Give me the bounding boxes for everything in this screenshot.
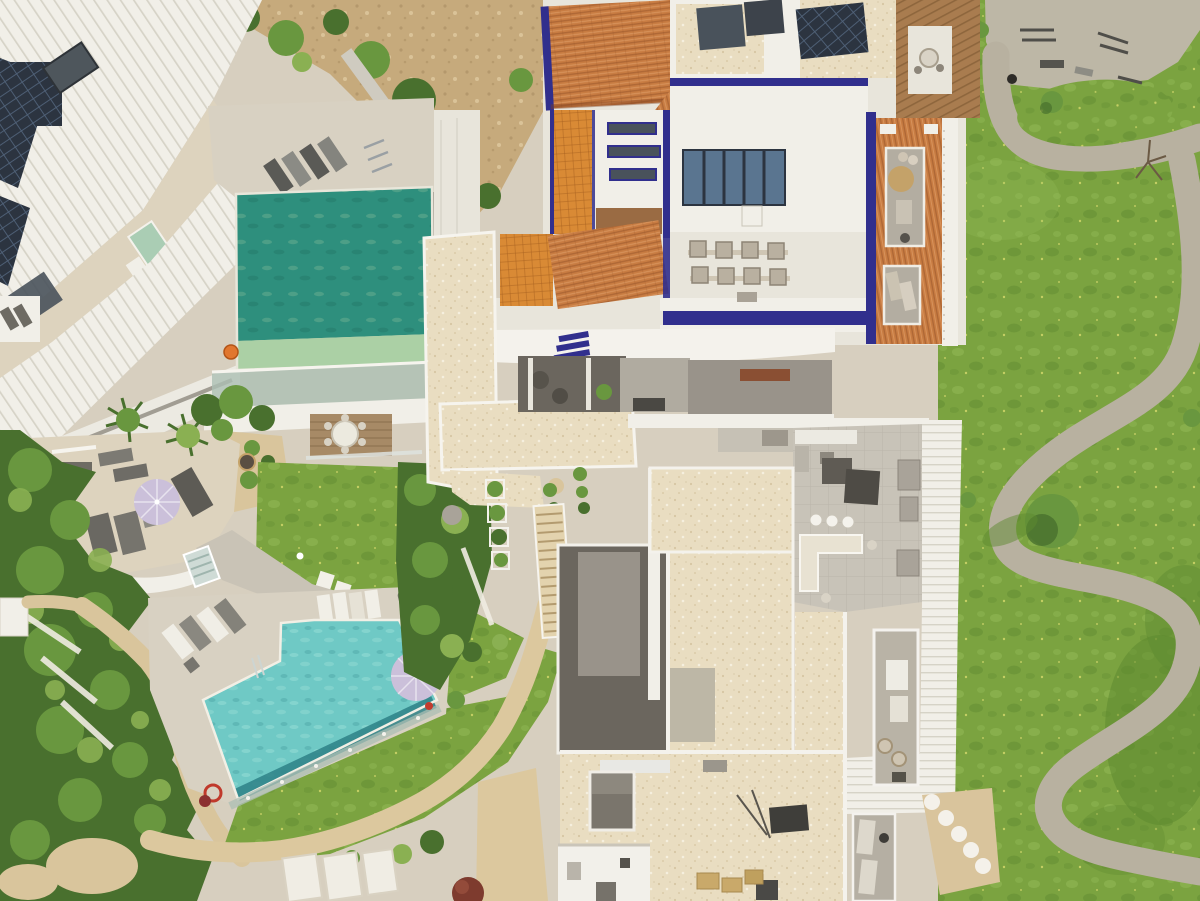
vent-box <box>898 460 920 490</box>
balcony-lower <box>884 266 920 324</box>
outdoor-kitchen <box>762 430 788 446</box>
round-table <box>332 421 358 447</box>
terracotta-house <box>866 112 958 346</box>
terracotta-roof-low <box>548 220 669 309</box>
blue-trim <box>670 78 868 86</box>
hot-tub <box>844 469 880 505</box>
boulder <box>442 505 462 525</box>
wicker-chair <box>878 739 892 753</box>
courtyard-plant <box>596 384 612 400</box>
balcony-penthouse <box>874 630 918 785</box>
solar-panels <box>796 2 869 59</box>
balcony-lower <box>853 814 895 901</box>
mediterranean-building <box>490 0 980 364</box>
roof-walkway <box>670 668 715 742</box>
aerial-photo-canvas <box>0 0 1200 901</box>
grate <box>633 398 665 411</box>
orange-parasol <box>224 345 238 359</box>
pergola <box>896 0 980 118</box>
white-facade <box>558 845 650 901</box>
shadow-paving <box>688 360 832 415</box>
orange-tiled-court <box>554 110 592 234</box>
aerial-photo <box>0 0 1200 901</box>
emerald-pool <box>204 98 434 434</box>
orange-tiled-path <box>500 234 553 306</box>
life-ring <box>425 702 433 710</box>
emerald-water <box>236 187 433 341</box>
wide-path <box>476 768 548 901</box>
parasol <box>888 166 914 192</box>
blue-trim <box>663 110 670 238</box>
balcony-upper <box>886 148 924 246</box>
blue-trim <box>550 110 554 234</box>
wood-bench <box>740 369 790 381</box>
slate-panels <box>696 4 745 50</box>
fire-bowl <box>239 454 255 470</box>
patio-table <box>920 49 938 67</box>
